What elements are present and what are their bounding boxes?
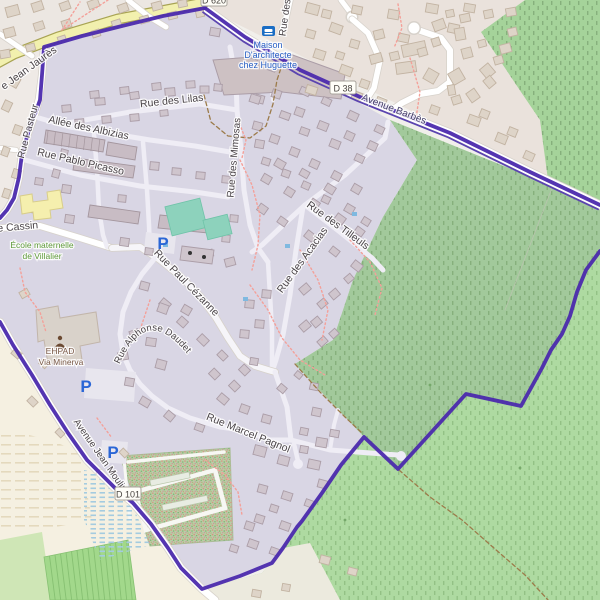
- svg-text:Maison: Maison: [253, 40, 282, 50]
- svg-text:D'architecte: D'architecte: [244, 50, 291, 60]
- svg-text:chez Huguette: chez Huguette: [239, 60, 297, 70]
- svg-text:EHPAD: EHPAD: [46, 346, 75, 356]
- svg-text:P: P: [80, 377, 91, 396]
- svg-text:de Villalier: de Villalier: [22, 251, 61, 261]
- svg-text:Via Minerva: Via Minerva: [39, 357, 84, 367]
- svg-text:P: P: [107, 443, 118, 462]
- svg-text:D 101: D 101: [116, 490, 140, 500]
- svg-text:École maternelle: École maternelle: [10, 240, 74, 250]
- svg-text:D 620: D 620: [202, 0, 226, 6]
- svg-text:D 38: D 38: [333, 84, 352, 94]
- svg-text:P: P: [157, 234, 168, 253]
